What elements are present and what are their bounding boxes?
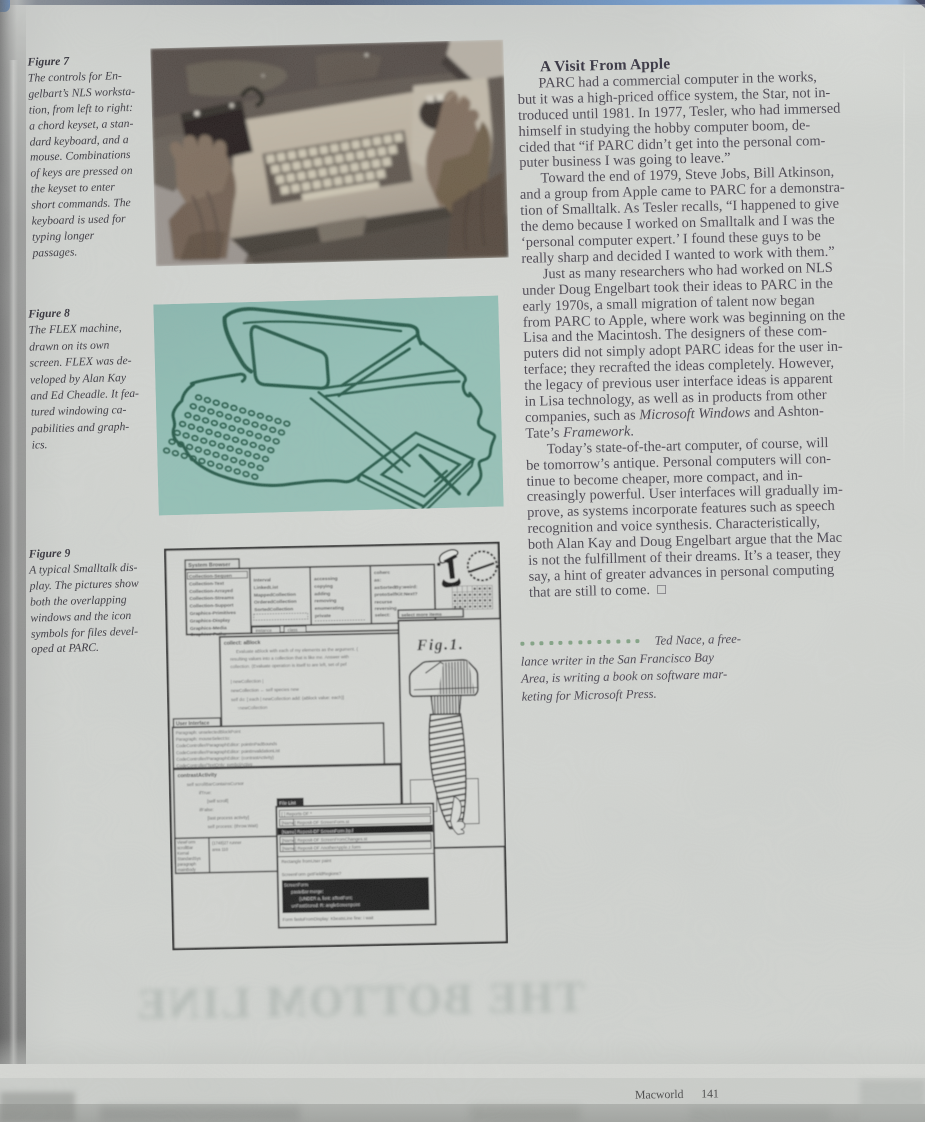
svg-text:copying: copying — [314, 583, 333, 589]
svg-text:class: class — [288, 627, 299, 632]
svg-text:Collection-Sequen: Collection-Sequen — [189, 573, 232, 580]
svg-text:scrollBar: scrollBar — [177, 845, 194, 850]
svg-text:Collection-Support: Collection-Support — [189, 603, 233, 610]
svg-text:ScreenForm: ScreenForm — [284, 882, 309, 888]
svg-text:Graphics-Primitives: Graphics-Primitives — [190, 610, 237, 617]
svg-text:Fig.1.: Fig.1. — [416, 636, 465, 654]
svg-text:Kernal: Kernal — [177, 851, 189, 856]
svg-text:area 110: area 110 — [212, 847, 229, 852]
svg-text:SortedCollection: SortedCollection — [254, 606, 293, 613]
svg-text:enumerating: enumerating — [315, 605, 344, 612]
svg-text:recurse: recurse — [374, 599, 392, 605]
svg-text:↑newCollection: ↑newCollection — [237, 705, 268, 711]
svg-text:as:: as: — [374, 578, 382, 583]
svg-text:select:: select: — [375, 612, 391, 618]
svg-text:[last process activity]: [last process activity] — [207, 815, 249, 821]
svg-text:Graphics-Media: Graphics-Media — [190, 625, 227, 632]
svg-text:Graphics-Display: Graphics-Display — [190, 618, 231, 625]
svg-text:(1748)27 runner: (1748)27 runner — [212, 840, 242, 846]
svg-text:private: private — [315, 613, 331, 619]
svg-text:LinkedList: LinkedList — [254, 585, 279, 592]
svg-text:mainBody: mainBody — [178, 867, 197, 872]
svg-text:instance: instance — [256, 628, 273, 633]
svg-text:MappedCollection: MappedCollection — [254, 592, 296, 599]
svg-text:StandardSys: StandardSys — [177, 856, 201, 861]
svg-text:ifFalse:: ifFalse: — [199, 807, 214, 812]
svg-text:Interval: Interval — [253, 577, 271, 583]
svg-text:self process: (throw.Wait): self process: (throw.Wait) — [208, 823, 259, 829]
svg-text:accessing: accessing — [314, 576, 338, 582]
svg-text:[ ] Reports-DF *: [ ] Reports-DF * — [281, 811, 312, 817]
svg-text:| newCollection |: | newCollection | — [231, 679, 264, 685]
svg-text:select more items: select more items — [401, 612, 442, 619]
svg-text:pasteBar merge:: pasteBar merge: — [291, 889, 324, 895]
svg-text:coherc: coherc — [374, 570, 390, 576]
svg-text:Rectangle fromUser paint: Rectangle fromUser paint — [281, 858, 332, 864]
svg-text:asSortedBy:weird:: asSortedBy:weird: — [374, 584, 418, 591]
svg-text:Collection-Streams: Collection-Streams — [189, 595, 234, 602]
svg-text:Collection-Text: Collection-Text — [189, 581, 224, 588]
svg-text:ifTrue:: ifTrue: — [199, 790, 212, 795]
svg-text:contrastActivity: contrastActivity — [178, 773, 217, 780]
svg-text:collect: aBlock: collect: aBlock — [224, 640, 261, 647]
svg-text:OrderedCollection: OrderedCollection — [254, 599, 297, 606]
svg-text:[self scroll]: [self scroll] — [207, 798, 228, 803]
svg-text:ViewForm: ViewForm — [177, 839, 196, 844]
svg-text:adding: adding — [314, 591, 330, 597]
svg-text:reversing: reversing — [375, 606, 397, 612]
svg-text:Collection-Arrayed: Collection-Arrayed — [189, 588, 233, 595]
svg-text:removing: removing — [314, 598, 336, 604]
svg-text:protoSelfKit:Next?: protoSelfKit:Next? — [374, 591, 417, 598]
